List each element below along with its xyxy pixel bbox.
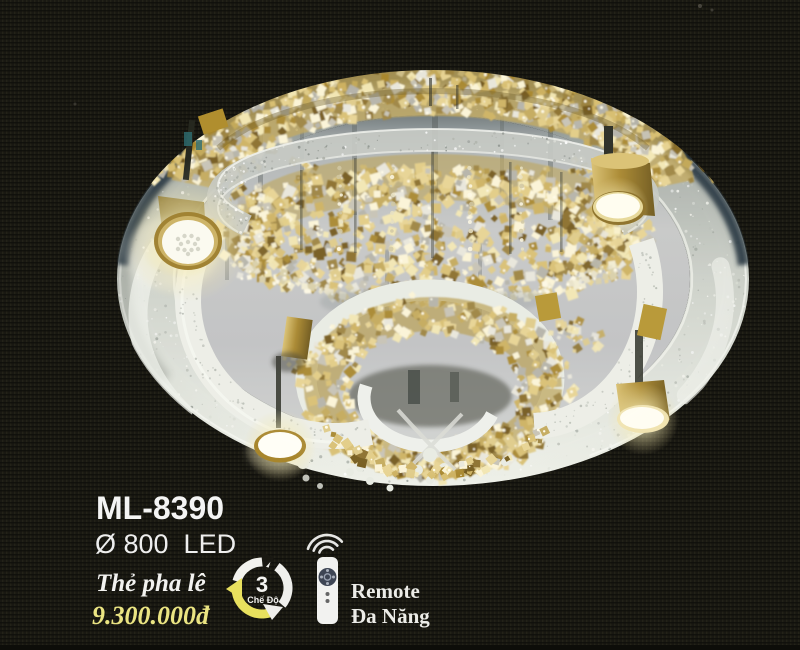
svg-text:Chế Độ: Chế Độ [247, 595, 279, 605]
svg-text:Thẻ pha lê: Thẻ pha lê [96, 570, 207, 597]
svg-text:Đa Năng: Đa Năng [351, 604, 430, 628]
svg-text:9.300.000đ: 9.300.000đ [92, 601, 211, 630]
svg-text:Remote: Remote [351, 579, 420, 603]
svg-text:ML-8390: ML-8390 [96, 490, 224, 526]
svg-text:Ø 800 LED: Ø 800 LED [95, 529, 236, 559]
svg-text:3: 3 [256, 572, 268, 597]
